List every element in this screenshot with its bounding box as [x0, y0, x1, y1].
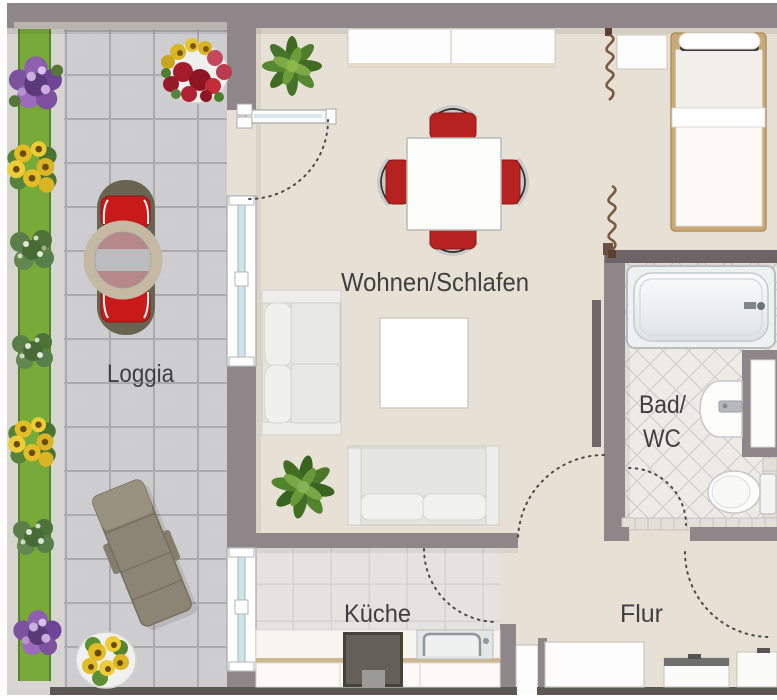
- svg-text:Bad/: Bad/: [639, 391, 686, 419]
- svg-text:Flur: Flur: [620, 600, 663, 628]
- svg-text:WC: WC: [643, 425, 681, 453]
- svg-text:Wohnen/Schlafen: Wohnen/Schlafen: [341, 267, 529, 297]
- svg-text:Loggia: Loggia: [107, 360, 174, 388]
- svg-text:Küche: Küche: [344, 600, 411, 628]
